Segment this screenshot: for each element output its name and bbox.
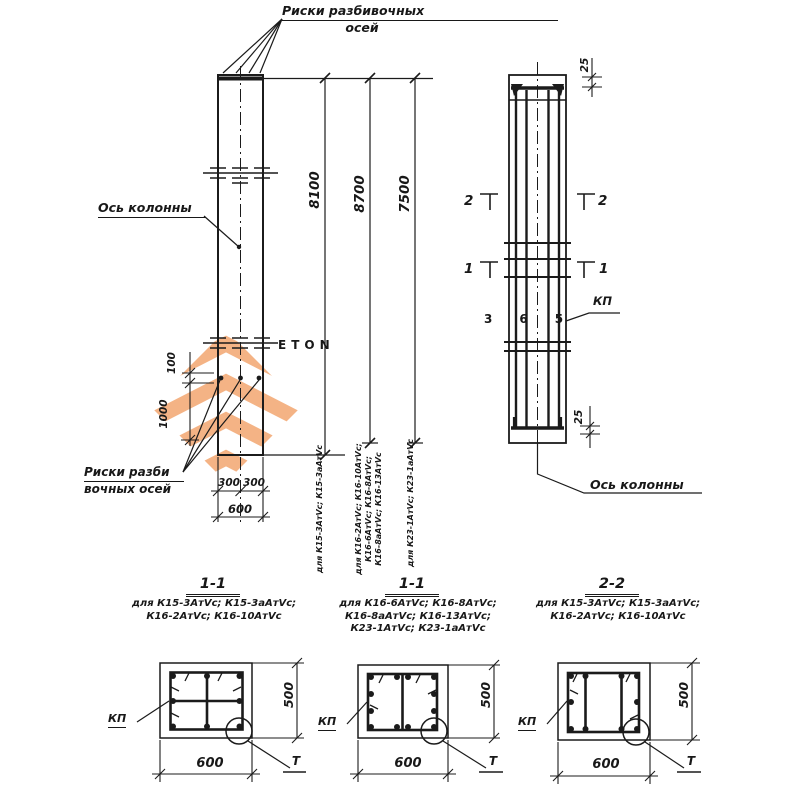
- dim-25-bottom: 25: [573, 406, 586, 428]
- section-c-applies-to: для К15-3АтVс; К15-3аАтVс; К16-2АтVс; К1…: [512, 598, 724, 623]
- dim-25-top: 25: [579, 54, 592, 76]
- section-a-dim-500: 500: [281, 668, 297, 722]
- dim-600-base: 600: [225, 502, 255, 516]
- riski-top-label-line2: осей: [322, 20, 402, 36]
- section-c-dim-500: 500: [676, 667, 692, 723]
- section-b-detail-label: Т: [485, 754, 501, 769]
- section-b-kp-label: КП: [318, 715, 336, 731]
- section-b-dim-500: 500: [478, 668, 494, 722]
- section-mark-1-left: 1: [464, 261, 473, 278]
- rebar-column-axis-label: Ось колонны: [590, 477, 702, 493]
- rebar-kp-label: КП: [593, 294, 612, 308]
- section-c-dim-600: 600: [586, 757, 626, 773]
- front-view-linework: [181, 19, 282, 522]
- section-b-title: 1-1: [385, 575, 439, 597]
- section-mark-1-right: 1: [599, 261, 608, 278]
- dim-300-left: 300: [218, 477, 240, 490]
- section-a-applies-to: для К15-3АтVс; К15-3аАтVс; К16-2АтVс; К1…: [108, 598, 320, 623]
- length-dim-note-2: для К16-2АтVс; К16-10АтVс; К16-6АтVс; К1…: [354, 440, 384, 578]
- section-mark-2-right: 2: [598, 193, 607, 210]
- section-b-dim-600: 600: [388, 756, 428, 772]
- dim-100: 100: [166, 350, 179, 376]
- section-c-detail-label: Т: [683, 754, 699, 769]
- section-a-title: 1-1: [186, 575, 240, 597]
- rebar-view-linework: [480, 58, 702, 493]
- length-dim-note-3: для К23-1АтVс; К23-1аАтVс: [406, 438, 416, 568]
- section-mark-2-left: 2: [464, 193, 473, 210]
- riski-bottom-label-line2: вочных осей: [84, 482, 194, 497]
- length-dimension-lines: [263, 73, 433, 460]
- riski-top-label: Риски разбивочных: [282, 3, 558, 21]
- dim-300-right: 300: [243, 477, 265, 490]
- section-c-title: 2-2: [585, 575, 639, 597]
- watermark-word: ETON: [278, 338, 335, 353]
- length-dim-8100: 8100: [307, 147, 324, 233]
- section-a-detail-label: Т: [288, 754, 304, 769]
- front-column-axis-label: Ось колонны: [98, 200, 206, 218]
- length-dim-7500: 7500: [397, 151, 414, 237]
- dim-1000: 1000: [158, 390, 171, 438]
- section-a-kp-label: КП: [108, 712, 126, 728]
- riski-bottom-label: Риски разби: [84, 465, 184, 482]
- watermark-number: 365: [484, 312, 590, 327]
- section-b-applies-to: для К16-6АтVс; К16-8АтVс; К16-8аАтVс; К1…: [312, 598, 524, 636]
- section-a-dim-600: 600: [190, 756, 230, 772]
- drawing-sheet: ETON 365: [0, 0, 800, 800]
- length-dim-note-1: для К15-3АтVс; К15-3аАтVс: [315, 444, 325, 574]
- section-c-kp-label: КП: [518, 715, 536, 731]
- length-dim-8700: 8700: [352, 151, 369, 237]
